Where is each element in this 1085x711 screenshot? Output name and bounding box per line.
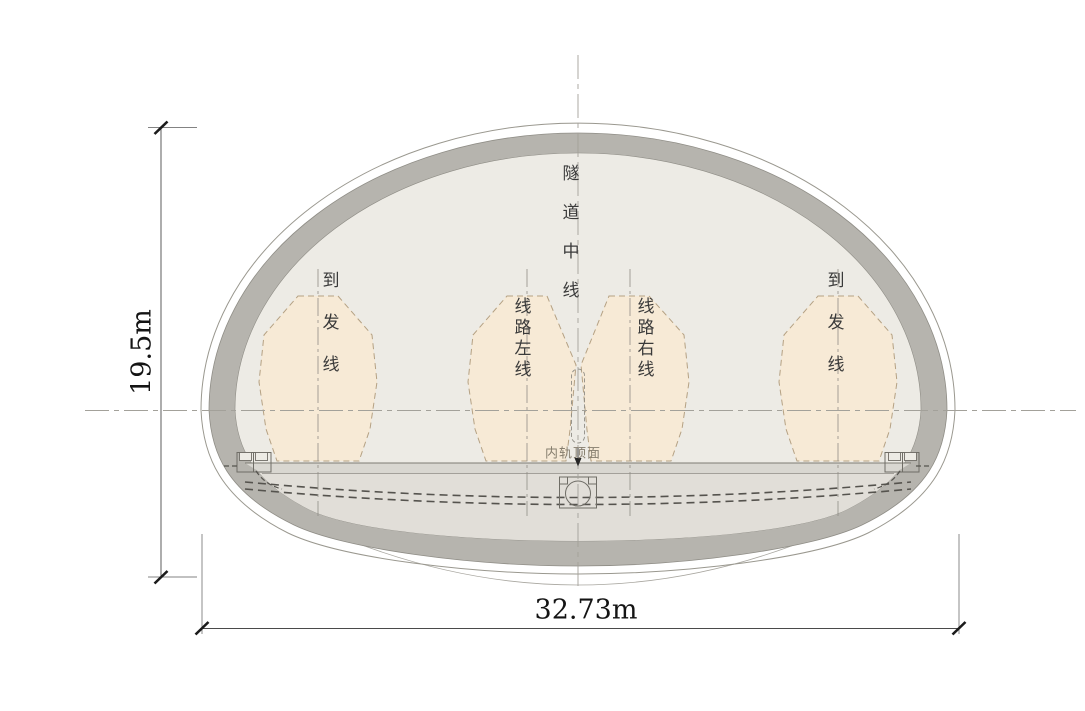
- tunnel-centerline-label: 隧道中线: [560, 164, 577, 320]
- route-right-label: 线路右线: [635, 297, 652, 381]
- width-dimension-label: 32.73m: [535, 595, 638, 626]
- inner-rail-top-label: 内轨顶面: [545, 443, 601, 462]
- route-left-label: 线路左线: [512, 297, 529, 381]
- height-dimension-label: 19.5m: [127, 309, 158, 395]
- tunnel-cross-section-drawing: 隧道中线 到发线 线路左线 线路右线 到发线 内轨顶面 19.5m 32.73m: [0, 0, 1085, 711]
- siding-right-label: 到发线: [825, 271, 842, 397]
- siding-left-label: 到发线: [320, 271, 337, 397]
